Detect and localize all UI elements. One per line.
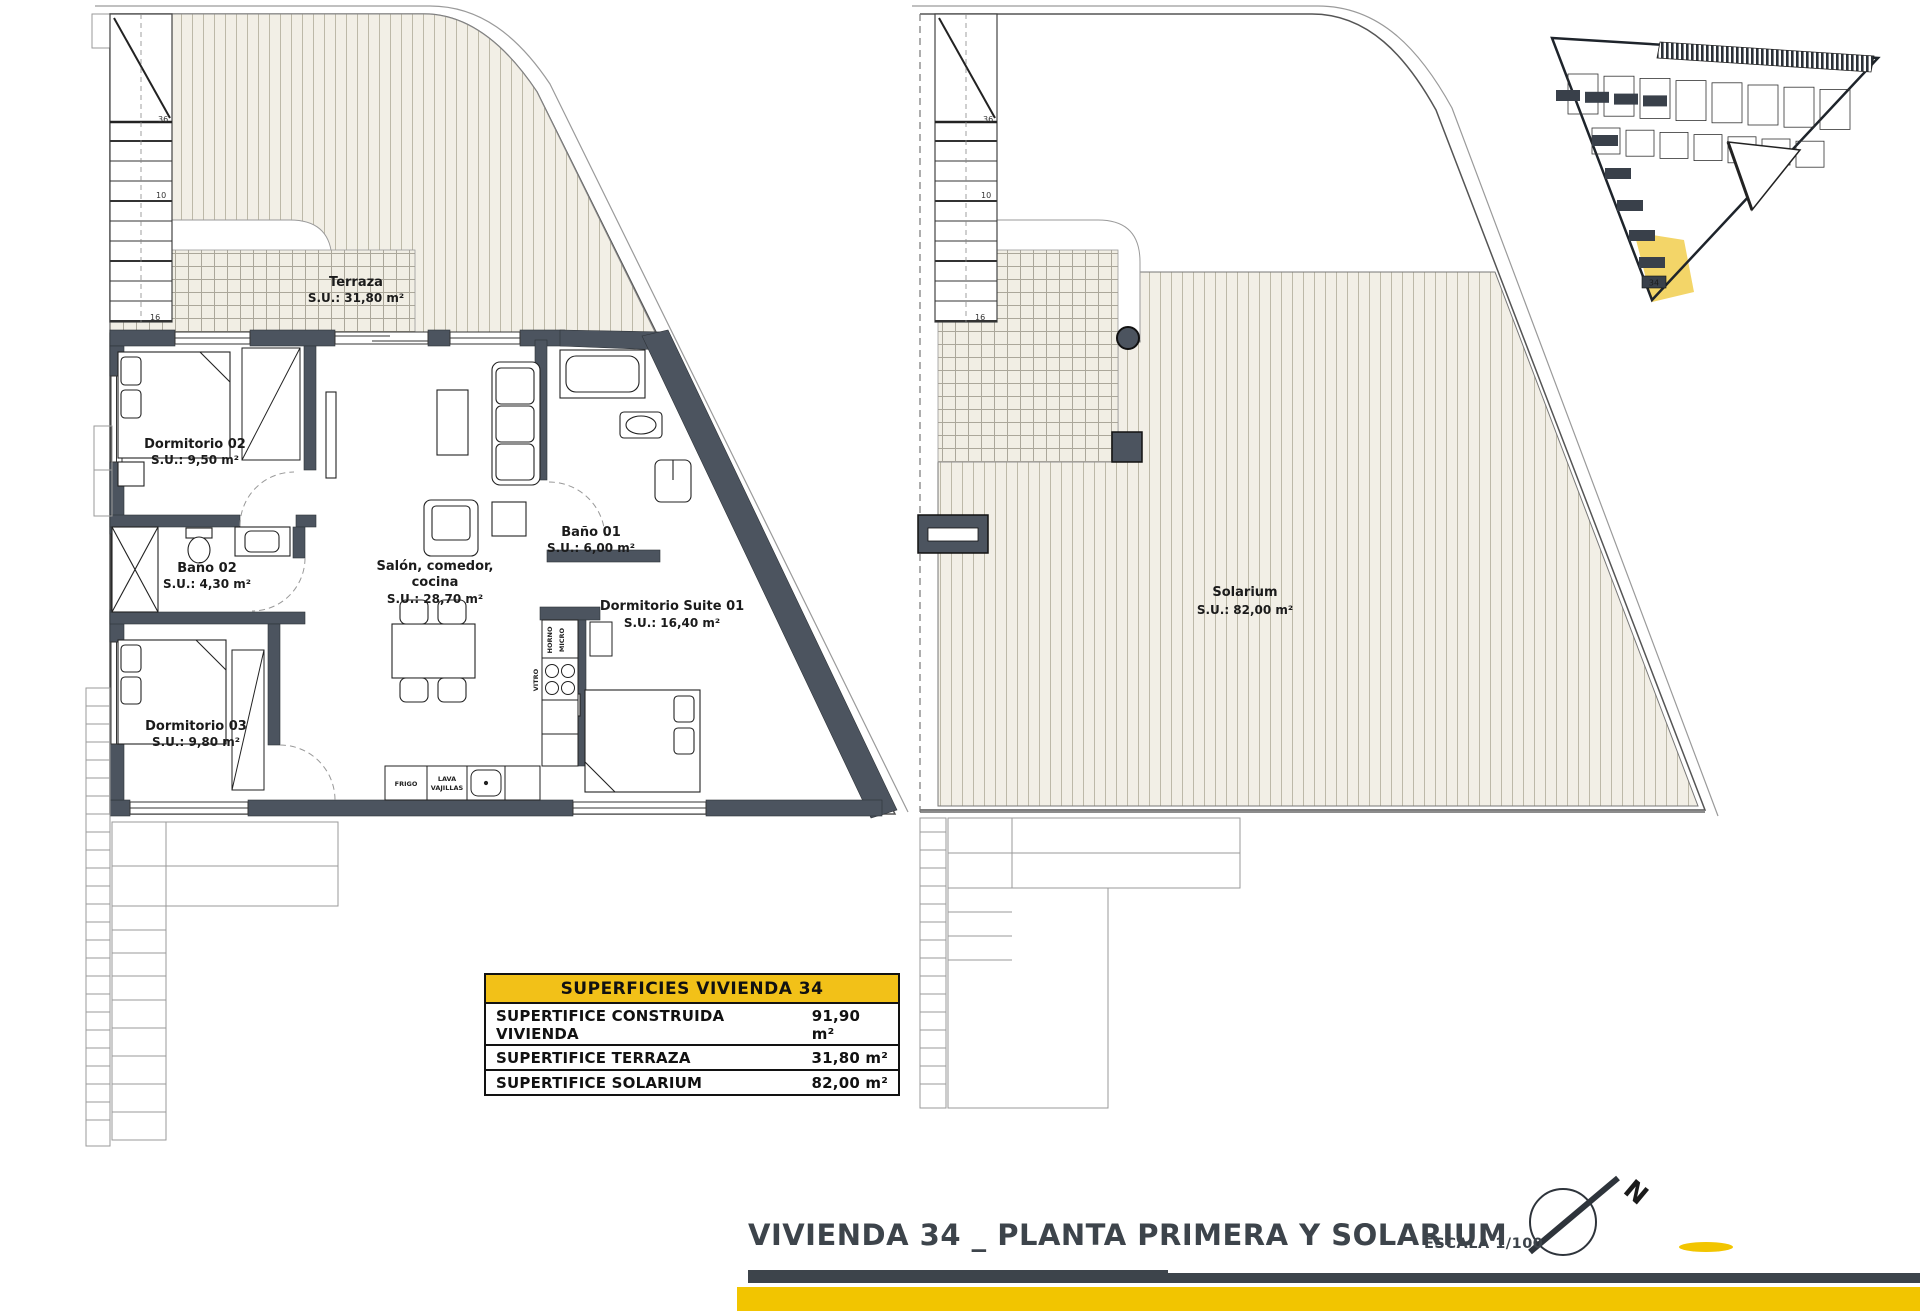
site-label-boxes-top	[1556, 90, 1667, 106]
title-divider-dark	[748, 1270, 1168, 1283]
stair-number-base: 16	[150, 313, 160, 322]
sink	[235, 527, 290, 556]
svg-text:S.U.: 28,70 m²: S.U.: 28,70 m²	[387, 592, 483, 606]
oven-label-1: HORNO	[546, 626, 554, 653]
scale-label: ESCALA 1/100	[1424, 1236, 1543, 1252]
svg-text:S.U.: 6,00 m²: S.U.: 6,00 m²	[547, 541, 635, 555]
room-label-bano-02: Baño 02	[177, 561, 236, 576]
stair-number-lower: 10	[156, 191, 166, 200]
row-label: SUPERTIFICE CONSTRUIDA VIVIENDA	[496, 1007, 812, 1043]
entry-notch	[92, 14, 110, 48]
row-label: SUPERTIFICE SOLARIUM	[496, 1074, 702, 1092]
areas-table: SUPERFICIES VIVIENDA 34 SUPERTIFICE CONS…	[484, 973, 900, 1096]
room-label-dormitorio-02: Dormitorio 02	[144, 437, 246, 452]
areas-table-header: SUPERFICIES VIVIENDA 34	[484, 973, 900, 1004]
sofa	[492, 362, 540, 485]
site-unit-row-1	[1568, 74, 1850, 129]
row-value: 31,80 m²	[812, 1049, 888, 1067]
fridge-label: FRIGO	[395, 780, 418, 788]
yellow-accent-dot	[1679, 1242, 1733, 1252]
staircase: 36 10 16	[935, 14, 997, 322]
svg-text:S.U.: 31,80 m²: S.U.: 31,80 m²	[308, 291, 404, 305]
svg-text:S.U.: 16,40 m²: S.U.: 16,40 m²	[624, 616, 720, 630]
wardrobe-dormitorio-02	[242, 348, 300, 460]
skylight-box	[918, 515, 988, 553]
tv-unit	[326, 392, 336, 478]
stair-number-base: 16	[975, 313, 985, 322]
north-units-band	[1657, 42, 1874, 72]
coffee-table	[437, 390, 468, 455]
oven-label-2: MICRO	[558, 627, 566, 652]
svg-text:34: 34	[1649, 279, 1659, 288]
armchair	[424, 500, 478, 556]
row-value: 82,00 m²	[812, 1074, 888, 1092]
room-label-salon: Salón, comedor,	[377, 559, 494, 574]
room-label-dormitorio-03: Dormitorio 03	[145, 719, 247, 734]
chimney-box	[1112, 432, 1142, 462]
table-row: SUPERTIFICE TERRAZA 31,80 m²	[484, 1044, 900, 1071]
site-plan-keymap: 34	[1552, 38, 1878, 302]
hob-label: VITRO	[532, 668, 540, 691]
column	[1117, 327, 1139, 349]
site-boundary	[1552, 38, 1878, 300]
room-label-terraza: Terraza	[329, 275, 383, 290]
svg-text:cocina: cocina	[412, 575, 459, 590]
dishwasher-label-2: VAJILLAS	[431, 784, 464, 792]
north-compass-icon: N	[1530, 1174, 1653, 1255]
title-divider-dark-2	[1138, 1273, 1920, 1283]
toilet	[186, 528, 212, 563]
tall-unit	[590, 622, 612, 656]
floor-plan-drawing: LAV MUEB 36 10 16	[0, 0, 1920, 1280]
svg-text:S.U.: 9,80 m²: S.U.: 9,80 m²	[152, 735, 240, 749]
stair-number-lower: 10	[981, 191, 991, 200]
room-label-suite-01: Dormitorio Suite 01	[600, 599, 744, 614]
highlight-unit-label: 34	[1642, 276, 1666, 288]
row-value: 91,90 m²	[812, 1007, 888, 1043]
svg-text:S.U.: 9,50 m²: S.U.: 9,50 m²	[151, 453, 239, 467]
svg-text:S.U.: 4,30 m²: S.U.: 4,30 m²	[163, 577, 251, 591]
title-divider-yellow	[737, 1287, 1920, 1311]
row-label: SUPERTIFICE TERRAZA	[496, 1049, 691, 1067]
solarium-plan: 36 10 16 Solarium S.U.: 82,00 m²	[912, 6, 1718, 1108]
staircase: 36 10 16	[110, 14, 172, 322]
table-row: SUPERTIFICE SOLARIUM 82,00 m²	[484, 1069, 900, 1096]
dishwasher-label-1: LAVA	[438, 775, 456, 783]
table-row: SUPERTIFICE CONSTRUIDA VIVIENDA 91,90 m²	[484, 1002, 900, 1047]
room-label-solarium: Solarium	[1212, 585, 1277, 600]
pool	[1728, 142, 1800, 210]
stair-number-upper: 36	[983, 115, 993, 124]
page-title: VIVIENDA 34 _ PLANTA PRIMERA Y SOLARIUM	[748, 1218, 1507, 1252]
svg-text:S.U.: 82,00 m²: S.U.: 82,00 m²	[1197, 603, 1293, 617]
room-label-bano-01: Baño 01	[561, 525, 620, 540]
exterior-stairs-right	[920, 818, 1240, 1108]
north-letter: N	[1618, 1174, 1654, 1211]
terrace-sliding-door	[335, 332, 428, 344]
stair-number-upper: 36	[158, 115, 168, 124]
side-table	[492, 502, 526, 536]
